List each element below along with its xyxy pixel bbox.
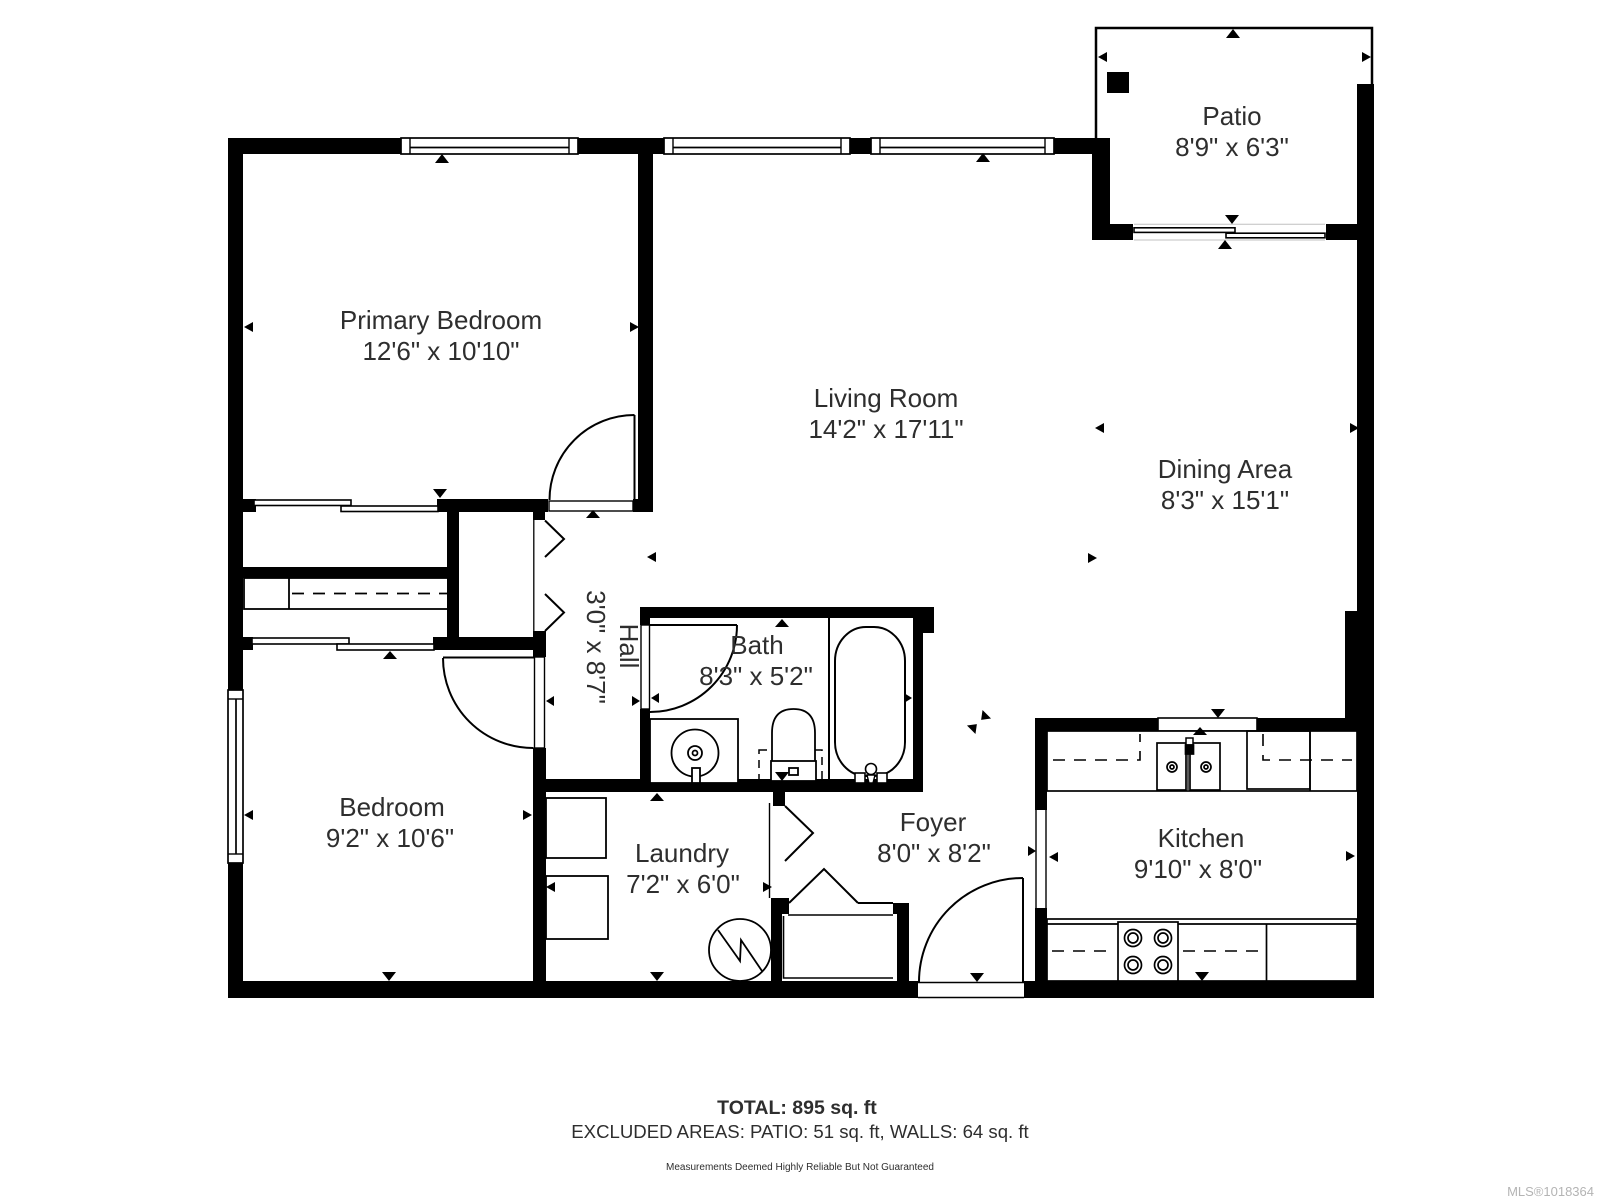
svg-text:EXCLUDED AREAS: PATIO: 51 sq.: EXCLUDED AREAS: PATIO: 51 sq. ft, WALLS:… bbox=[571, 1121, 1029, 1142]
svg-text:8'3" x 15'1": 8'3" x 15'1" bbox=[1161, 485, 1289, 515]
svg-text:Measurements Deemed Highly Rel: Measurements Deemed Highly Reliable But … bbox=[666, 1162, 934, 1173]
svg-text:9'2" x 10'6": 9'2" x 10'6" bbox=[326, 823, 454, 853]
svg-text:Bath: Bath bbox=[730, 630, 784, 660]
svg-text:12'6" x 10'10": 12'6" x 10'10" bbox=[362, 336, 519, 366]
svg-text:Living Room: Living Room bbox=[814, 383, 959, 413]
svg-text:Bedroom: Bedroom bbox=[339, 792, 445, 822]
svg-text:14'2" x 17'11": 14'2" x 17'11" bbox=[808, 414, 963, 444]
svg-text:Patio: Patio bbox=[1202, 101, 1261, 131]
svg-text:Kitchen: Kitchen bbox=[1158, 823, 1245, 853]
svg-text:Laundry: Laundry bbox=[635, 838, 729, 868]
svg-text:TOTAL: 895 sq. ft: TOTAL: 895 sq. ft bbox=[717, 1097, 877, 1119]
svg-text:Dining Area: Dining Area bbox=[1158, 454, 1293, 484]
svg-text:MLS®1018364: MLS®1018364 bbox=[1507, 1184, 1594, 1199]
svg-text:8'0" x 8'2": 8'0" x 8'2" bbox=[877, 838, 991, 868]
svg-text:9'10" x 8'0": 9'10" x 8'0" bbox=[1134, 854, 1262, 884]
svg-text:Hall: Hall bbox=[614, 624, 644, 669]
svg-text:7'2" x 6'0": 7'2" x 6'0" bbox=[626, 869, 740, 899]
svg-text:Foyer: Foyer bbox=[900, 807, 967, 837]
svg-text:8'3" x 5'2": 8'3" x 5'2" bbox=[699, 661, 813, 691]
svg-text:3'0" x 8'7": 3'0" x 8'7" bbox=[581, 590, 611, 704]
svg-text:8'9" x 6'3": 8'9" x 6'3" bbox=[1175, 132, 1289, 162]
svg-text:Primary Bedroom: Primary Bedroom bbox=[340, 305, 542, 335]
